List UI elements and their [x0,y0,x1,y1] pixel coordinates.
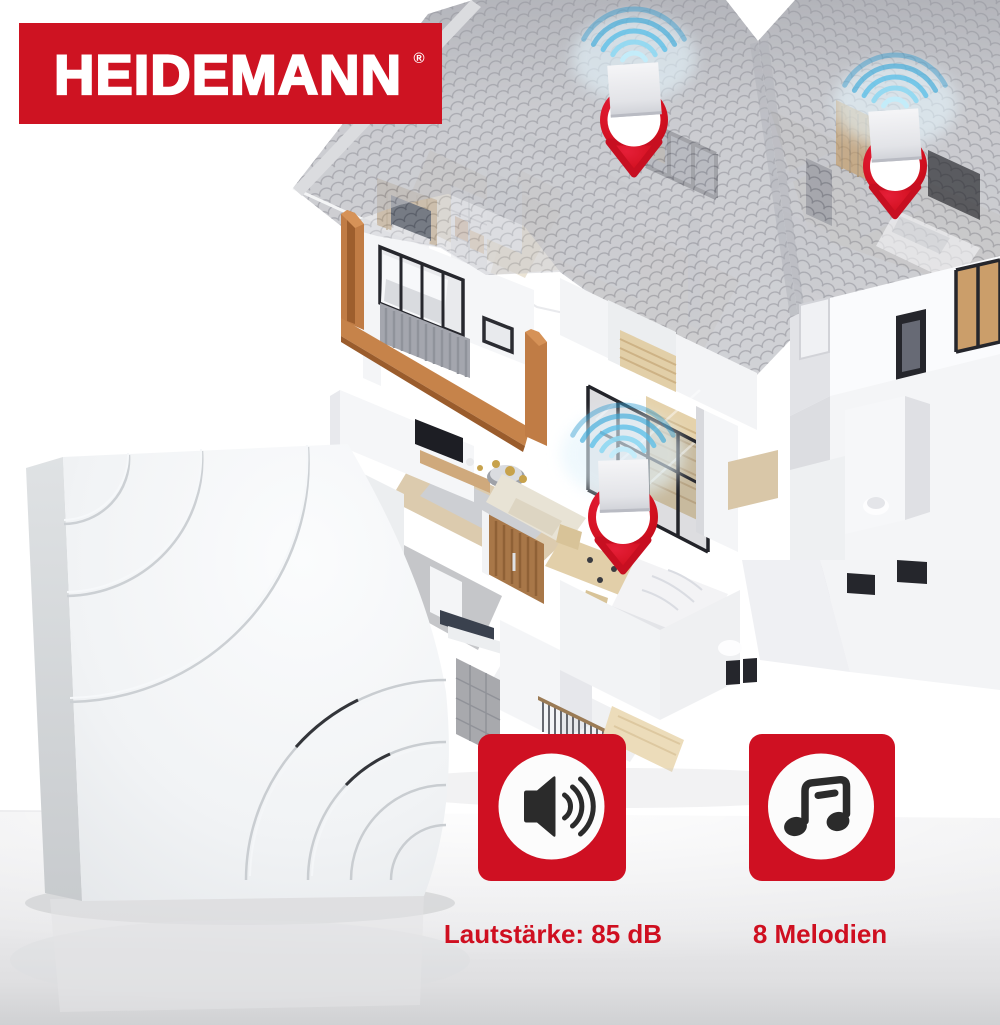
svg-text:Lautstärke: 85 dB: Lautstärke: 85 dB [444,919,662,949]
svg-text:HEIDEMANN: HEIDEMANN [54,43,402,106]
svg-text:®: ® [413,50,424,67]
svg-text:8 Melodien: 8 Melodien [753,919,887,949]
